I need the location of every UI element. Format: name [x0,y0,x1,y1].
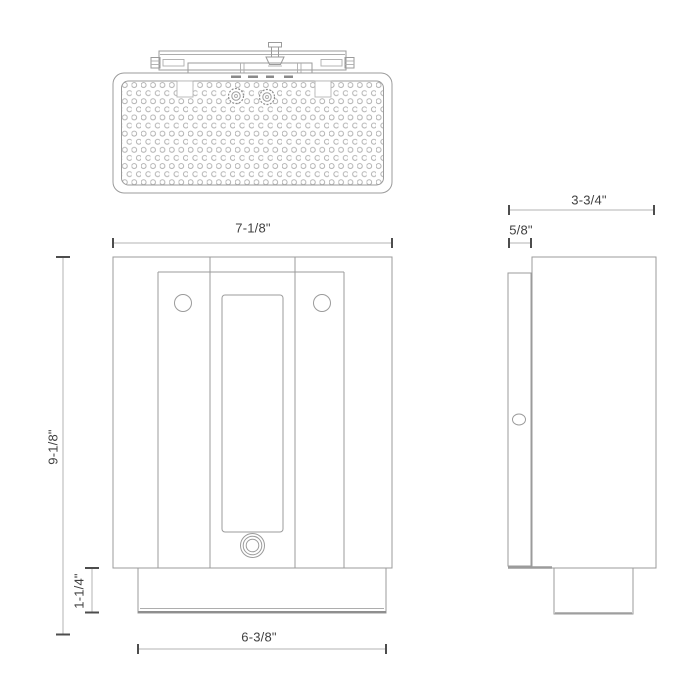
bracket-slot-right [321,60,342,67]
drawing-linework [0,0,700,700]
front-outer-body [113,257,392,568]
dimension-label-base-width: 6-3/8" [241,630,276,645]
bracket-step-plate [188,63,312,73]
vent-dashes [231,76,293,79]
dimension-drawing-canvas: 7-1/8" 9-1/8" 1-1/4" 6-3/8" 3-3/4" 5/8" [0,0,700,700]
dimension-lines [56,205,655,654]
front-diffuser [138,568,386,613]
dimension-label-overall-width: 7-1/8" [235,221,270,236]
dimension-label-base-height: 1-1/4" [72,573,87,608]
front-glass-panel [222,295,283,532]
dimension-label-backplate-depth: 5/8" [509,223,533,238]
side-wall-plate [508,273,552,568]
dim-line-base-height [85,567,99,614]
mounting-bracket [151,43,354,74]
front-screw-right [314,295,331,312]
dim-line-overall-width [112,238,393,248]
grille-notch-right [315,81,331,97]
perforated-grille [122,81,384,185]
dimension-label-overall-height: 9-1/8" [46,429,61,464]
dim-line-backplate-depth [508,238,532,248]
front-screw-left [175,295,192,312]
side-body [532,257,656,568]
front-thumb-knob [241,534,265,558]
dimension-label-overall-depth: 3-3/4" [571,193,606,208]
screw-knob-left [229,89,244,104]
front-view [113,257,392,613]
bracket-slot-left [163,60,184,67]
front-backplate [158,272,344,568]
keyhole-slot [513,414,526,425]
dim-line-base-width [137,644,387,654]
top-view [113,43,392,194]
side-diffuser [554,568,633,614]
side-view [508,257,656,614]
screw-knob-right [260,90,275,105]
grille-notch-left [177,81,193,97]
